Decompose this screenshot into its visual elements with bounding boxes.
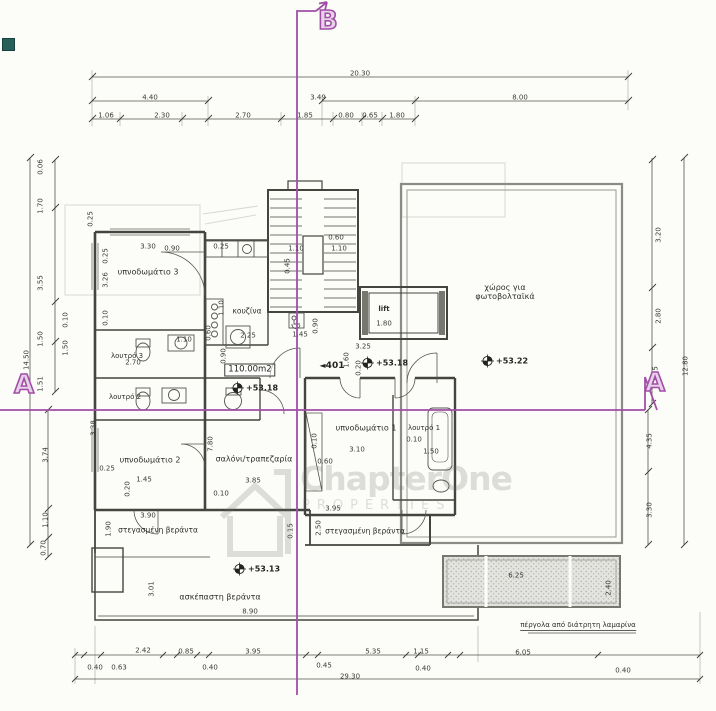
room-label: λουτρό 3 [111,352,143,360]
dimension-label: 3.49 [310,95,326,102]
section-marker-b: B [318,8,338,34]
dimension-label: 3.10 [349,447,365,454]
dimension-label: 1.51 [38,376,45,392]
dimension-label: 3.85 [245,478,261,485]
dimension-label: 12.80 [683,356,690,376]
elevation-marker-icon [361,357,374,370]
elevation-marker: +53.18 [361,357,408,370]
elevation-value: +53.13 [248,565,280,574]
floor-plan-sheet: ChapterOne PROPERTIES B A A 110.00m2 ◄40… [0,0,716,711]
dimension-label: 0.40 [615,668,631,675]
dimension-label: 2.40 [606,580,613,596]
dimension-label: 6.25 [508,573,524,580]
dimension-label: 1.10 [176,337,192,344]
dimension-label: 0.80 [338,113,354,120]
dimension-label: 1.50 [38,331,45,347]
dimension-label: 0.10 [406,437,422,444]
dimension-label: 20.30 [350,71,370,78]
dimension-label: 3.20 [656,227,663,243]
dimension-label: 14.50 [24,350,31,370]
room-label: υπνοδωμάτιο 3 [118,267,179,276]
elevation-marker-icon [233,563,246,576]
dimension-label: 4.35 [647,433,654,449]
dimension-label: 0.60 [317,459,333,466]
unit-area-label: 110.00m2 [224,364,275,377]
dimension-label: 1.80 [389,113,405,120]
dimension-label: 3.74 [43,447,50,463]
dimension-label: 0.15 [288,523,295,539]
dimension-label: 2.70 [125,360,141,367]
dimension-label: 2.42 [135,648,151,655]
dimension-label: 1.85 [297,113,313,120]
section-marker-a-right: A [645,370,665,396]
dimension-label: 3.95 [325,506,341,513]
dimension-label: 1.80 [376,321,392,328]
dimension-label: 8.90 [242,609,258,616]
dimension-label: 3.01 [149,581,156,597]
dimension-label: 1.45 [292,332,308,339]
dimension-label: 0.10 [63,312,70,328]
dimension-label: 1.50 [63,340,70,356]
dimension-label: 0.25 [99,466,115,473]
elevation-marker: +53.22 [481,355,528,368]
room-label: λουτρό 1 [408,424,440,432]
room-label: στεγασμένη βεράντα [325,528,405,537]
section-marker-a-left: A [14,372,34,398]
dimension-label: 3.25 [355,344,371,351]
dimension-label: 3.26 [103,272,110,288]
dimension-label: 0.25 [213,244,229,251]
dimension-label: 0.90 [164,246,180,253]
dimension-label: 1.06 [98,113,114,120]
dimension-label: 3.30 [647,502,654,518]
dimension-label: 3.55 [38,275,45,291]
elevation-marker: +53.13 [233,563,280,576]
room-label: πέργολα από διάτρητη λαμαρίνα [520,621,636,631]
dimension-label: 29.30 [340,674,360,681]
dimension-label: 1.15 [413,649,429,656]
dimension-label: 2.25 [240,333,256,340]
room-label: lift [378,305,389,313]
dimension-label: 3.95 [245,649,261,656]
dimension-label: 3.38 [91,420,98,436]
dimension-label: 5.35 [365,649,381,656]
dimension-label: 3.30 [140,244,156,251]
room-label: ασκέπαστη βεράντα [179,592,260,601]
room-label: κουζίνα [232,308,261,317]
dimension-label: 0.85 [178,649,194,656]
elevation-value: +53.18 [246,384,278,393]
dimension-label: 1.10 [219,300,226,316]
dimension-label: 2.80 [656,308,663,324]
dimension-label: 0.10 [103,310,110,326]
dimension-label: 1.10 [43,512,50,528]
unit-number-label: ◄401 [320,361,345,371]
dimension-label: 1.50 [423,449,439,456]
dimension-label: 3.90 [140,513,156,520]
dimension-label: 8.00 [512,95,528,102]
dimension-label: 0.10 [312,433,319,449]
dimension-label: 0.06 [38,159,45,175]
room-label: υπνοδωμάτιο 2 [120,455,181,464]
room-label: σαλόνι/τραπεζαρία [216,454,293,463]
dimension-label: 2.50 [316,520,323,536]
dimension-label: 0.70 [41,540,48,556]
dimension-label: 1.10 [331,246,347,253]
dimension-label: 4.40 [142,95,158,102]
dimension-label: 0.40 [415,666,431,673]
room-label: χώρος για φωτοβολταϊκά [475,283,534,301]
room-label: υπνοδωμάτιο 1 [336,423,397,432]
elevation-marker-icon [481,355,494,368]
dimension-label: 0.63 [111,665,127,672]
dimension-label: 0.20 [125,481,132,497]
labels-layer: 110.00m2 ◄401 20.304.403.498.001.062.302… [0,0,716,711]
dimension-label: 6.05 [515,650,531,657]
dimension-label: 0.25 [88,211,95,227]
dimension-label: 0.65 [362,113,378,120]
dimension-label: 0.90 [313,318,320,334]
dimension-label: 1.60 [344,352,351,368]
dimension-label: 0.40 [202,665,218,672]
dimension-label: 0.60 [206,325,213,341]
dimension-label: 0.90 [221,348,228,364]
dimension-label: 1.10 [288,246,304,253]
dimension-label: 0.45 [285,258,292,274]
elevation-value: +53.22 [496,357,528,366]
elevation-marker-icon [231,382,244,395]
dimension-label: 2.30 [154,113,170,120]
dimension-label: 0.40 [87,665,103,672]
elevation-marker: +53.18 [231,382,278,395]
room-label: λουτρό 2 [109,393,141,401]
dimension-label: 1.90 [106,521,113,537]
dimension-label: 0.45 [316,663,332,670]
room-label: στεγασμένη βεράντα [118,527,198,536]
dimension-label: 7.80 [208,436,215,452]
dimension-label: 0.60 [328,235,344,242]
elevation-value: +53.18 [376,359,408,368]
dimension-label: 2.70 [235,113,251,120]
dimension-label: 1.70 [38,198,45,214]
dimension-label: 0.10 [213,491,229,498]
dimension-label: 1.45 [136,477,152,484]
dimension-label: 0.25 [103,248,110,264]
